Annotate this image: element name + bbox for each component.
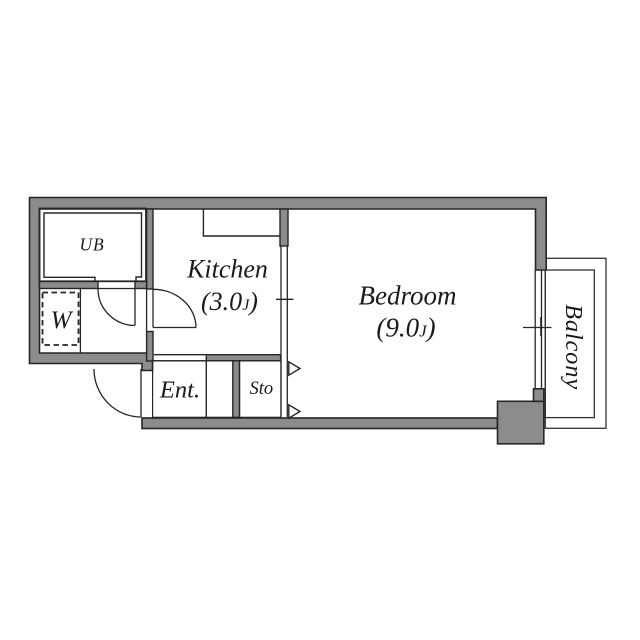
- svg-text:W: W: [51, 307, 74, 334]
- svg-text:(9.0J): (9.0J): [376, 312, 435, 342]
- svg-text:Kitchen: Kitchen: [186, 255, 268, 284]
- svg-text:UB: UB: [80, 235, 105, 255]
- svg-text:Balcony: Balcony: [560, 304, 587, 390]
- svg-text:Ent.: Ent.: [159, 377, 200, 404]
- svg-text:Bedroom: Bedroom: [359, 280, 457, 310]
- svg-text:(3.0J): (3.0J): [201, 287, 258, 316]
- svg-text:Sto: Sto: [249, 379, 273, 399]
